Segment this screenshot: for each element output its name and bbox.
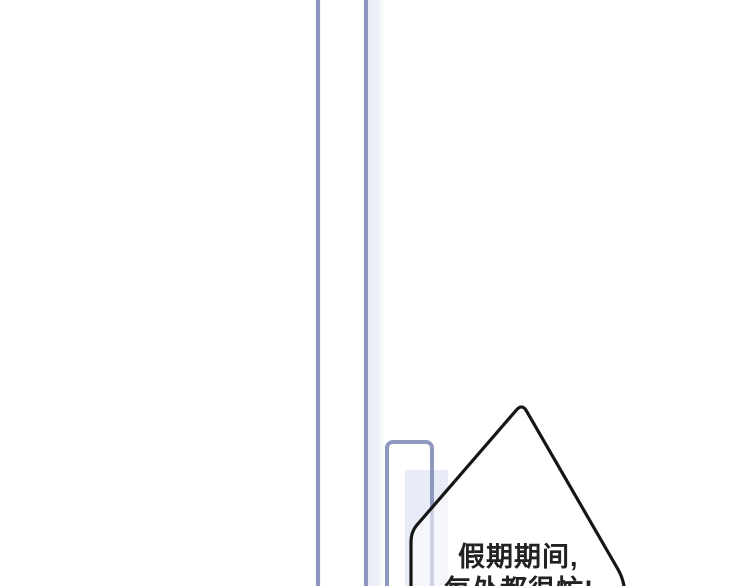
speech-bubble: [0, 0, 750, 586]
speech-bubble-outline: [411, 407, 625, 586]
comic-panel: 假期期间, 每处都很忙!: [0, 0, 750, 586]
